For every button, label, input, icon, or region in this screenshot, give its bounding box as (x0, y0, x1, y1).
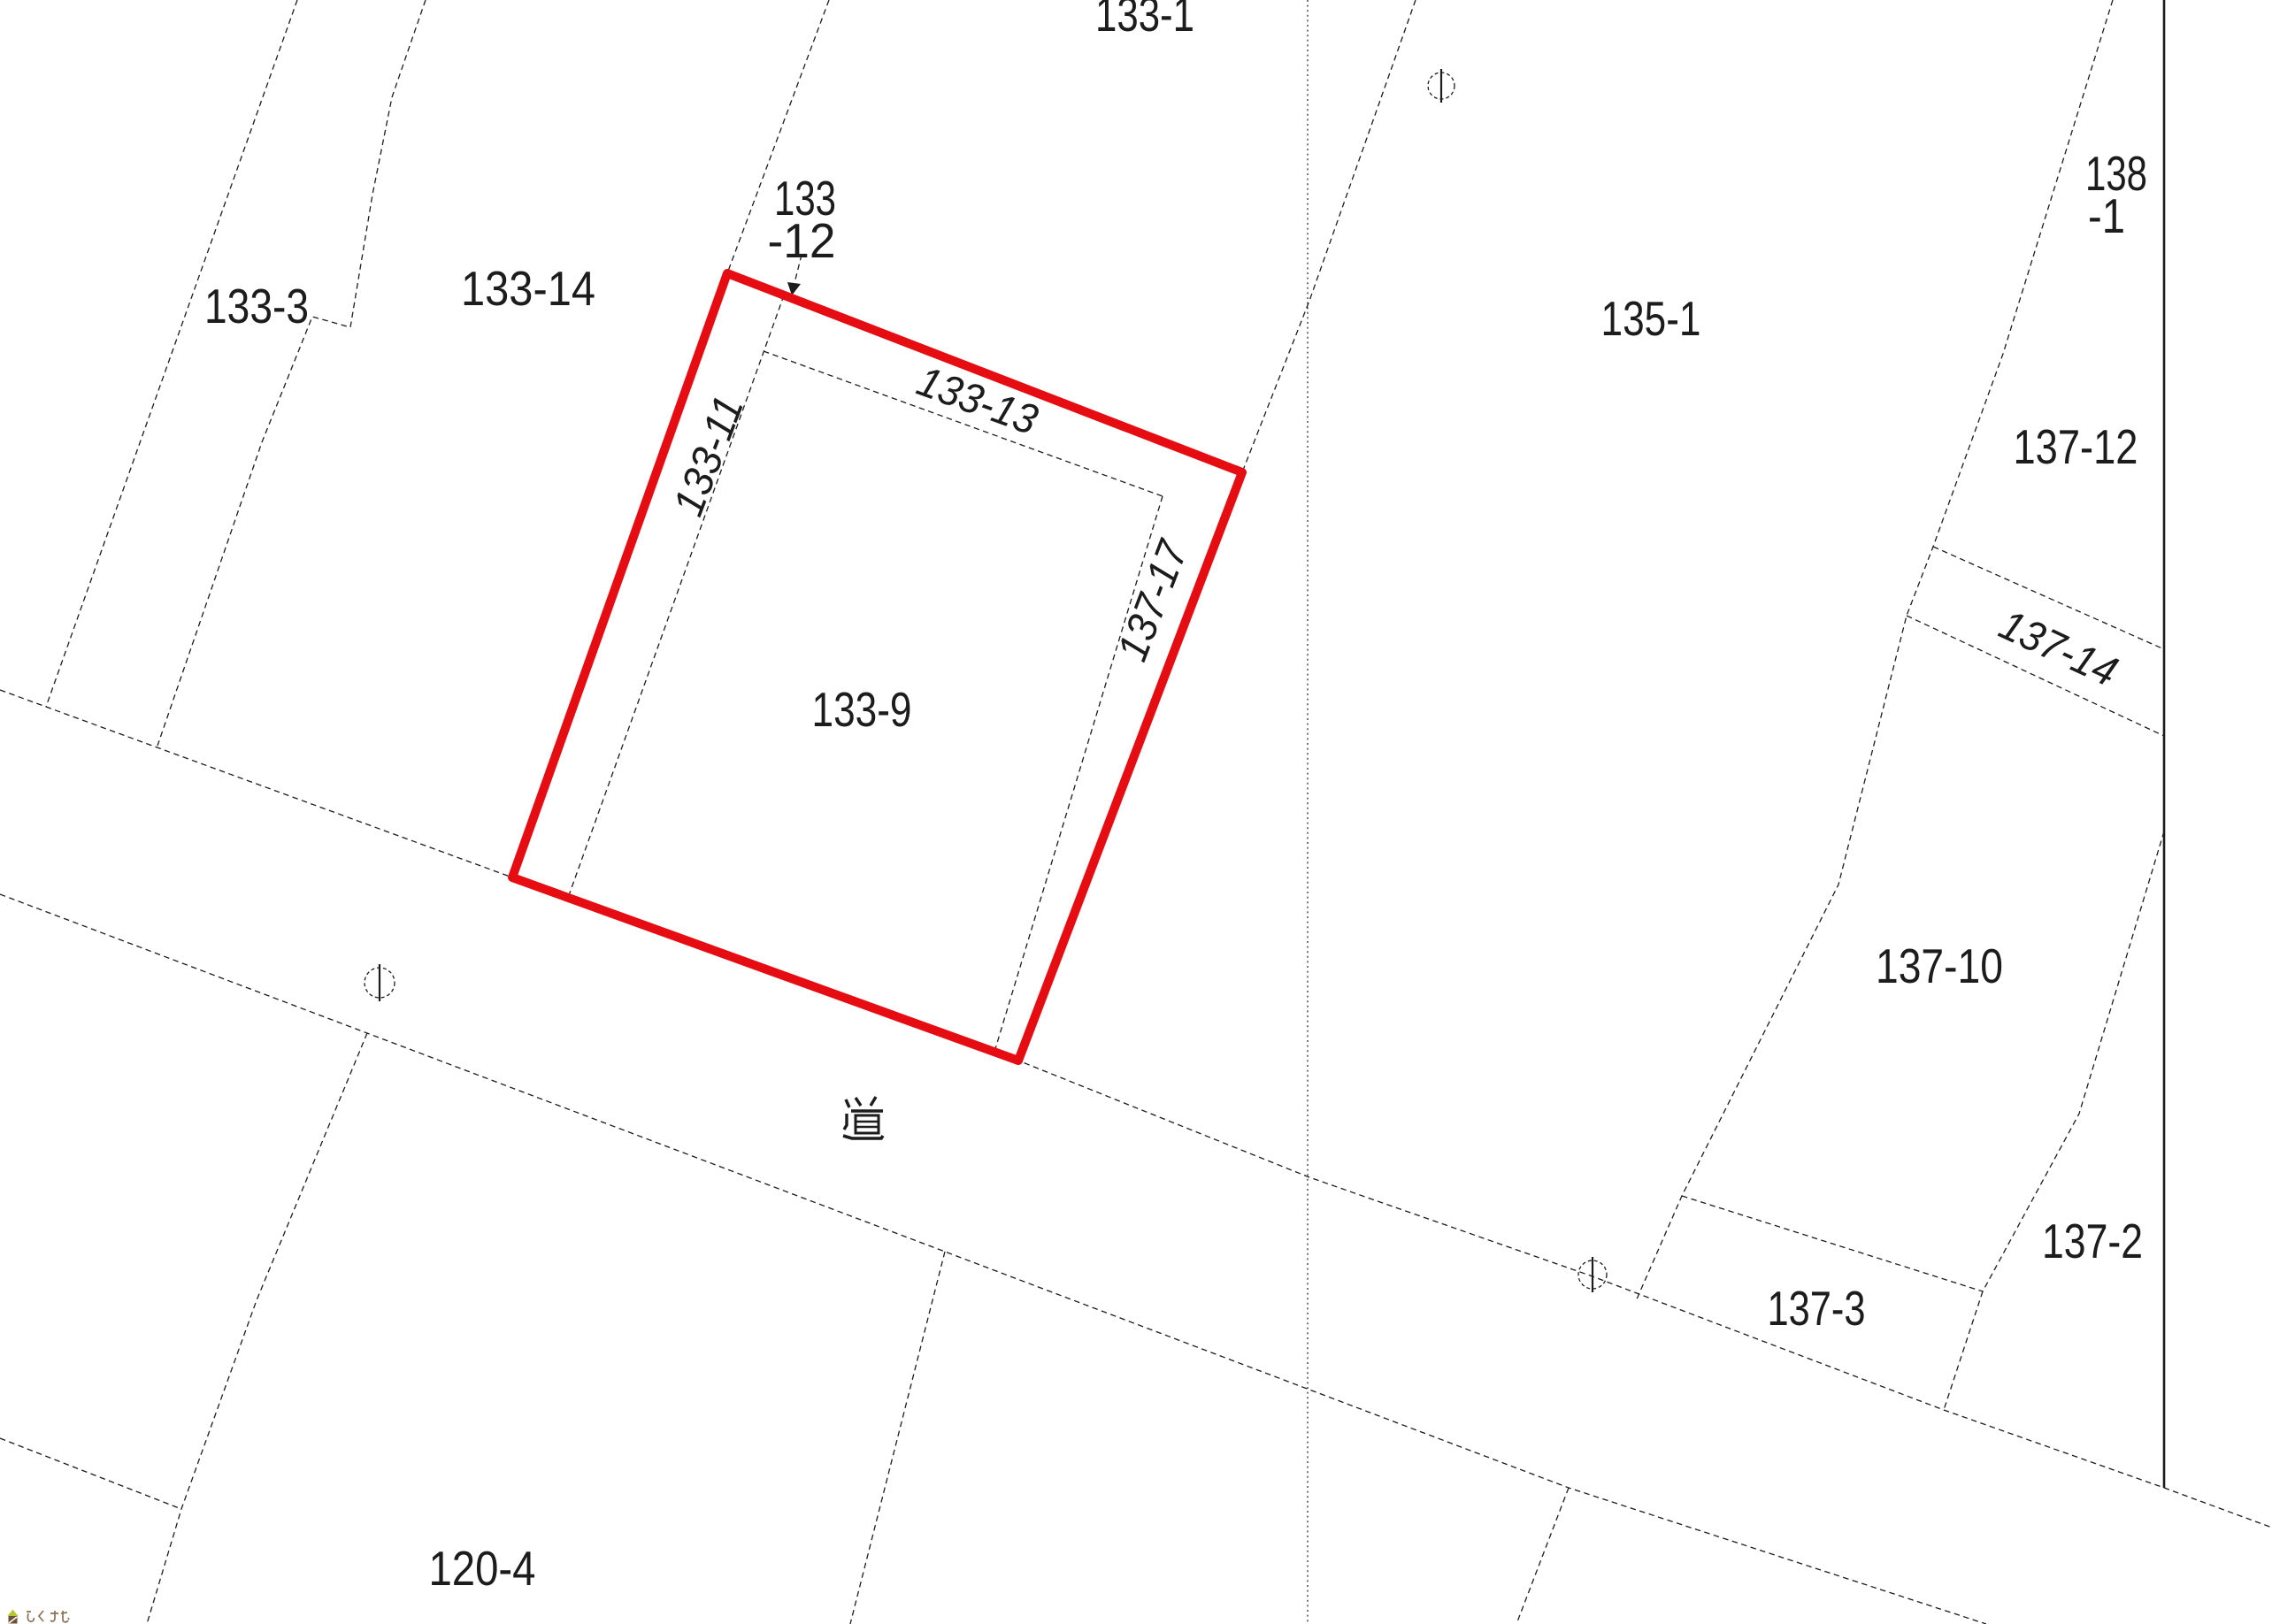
svg-text:133-3: 133-3 (204, 279, 309, 333)
svg-text:137-12: 137-12 (2014, 419, 2138, 474)
svg-text:137-10: 137-10 (1876, 938, 2003, 993)
svg-text:137-3: 137-3 (1768, 1281, 1866, 1336)
svg-text:-12: -12 (768, 213, 836, 268)
svg-text:135-1: 135-1 (1601, 291, 1701, 346)
svg-text:-1: -1 (2088, 188, 2125, 243)
svg-text:133-14: 133-14 (461, 261, 595, 316)
svg-text:133-9: 133-9 (812, 682, 912, 737)
svg-text:133-1: 133-1 (1095, 0, 1194, 42)
svg-text:137-17: 137-17 (1109, 533, 1198, 668)
svg-text:137-14: 137-14 (1992, 601, 2124, 696)
svg-text:120-4: 120-4 (429, 1541, 536, 1596)
svg-text:137-2: 137-2 (2042, 1214, 2143, 1268)
